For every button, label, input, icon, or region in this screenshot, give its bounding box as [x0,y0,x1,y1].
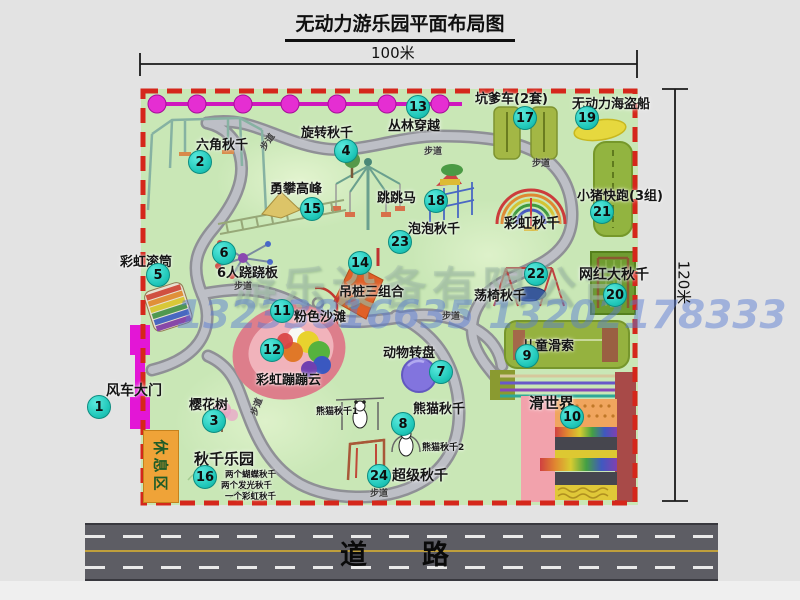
marker-hanging-piles-combo: 14 [348,251,372,275]
label-climbing-peak: 勇攀高峰 [270,178,322,197]
road: 道 路 [85,523,718,581]
label-chair-swing: 荡椅秋千 [474,285,526,304]
walkway-label-4: 步道 [234,279,252,292]
marker-rotating-swing: 4 [334,139,358,163]
marker-climbing-peak: 15 [300,197,324,221]
marker-animal-turntable: 7 [429,360,453,384]
label-bubble-swing: 泡泡秋千 [408,218,460,237]
marker-chair-swing: 22 [524,262,548,286]
rest-area: 休息区 [143,430,179,503]
marker-bubble-swing: 23 [388,230,412,254]
marker-kids-zipline: 9 [515,344,539,368]
label-super-swing: 超级秋千 [392,465,448,485]
marker-piggy-run: 21 [590,200,614,224]
marker-panda-swing: 8 [391,412,415,436]
label-animal-turntable: 动物转盘 [383,342,435,361]
marker-rainbow-bounce-cloud: 12 [260,338,284,362]
marker-cherry-tree: 3 [202,409,226,433]
walkway-label-6: 步道 [442,309,460,322]
label-piggy-run: 小猪快跑(3组) [577,185,663,204]
marker-jungle-crossing: 13 [406,95,430,119]
page-title: 无动力游乐园平面布局图 [0,9,800,42]
marker-pink-beach: 11 [270,299,294,323]
marker-super-swing: 24 [367,464,391,488]
label-jumping-horse: 跳跳马 [377,187,416,206]
marker-jumping-horse: 18 [424,189,448,213]
label-rainbow-bounce-cloud: 彩虹蹦蹦云 [256,369,321,388]
marker-six-person-seesaw: 6 [212,241,236,265]
swing-park-detail-3: 一个彩虹秋千 [225,490,276,502]
marker-pirate-ship: 19 [575,106,599,130]
dimension-height-label: 120米 [673,261,694,305]
marker-slide-world: 10 [560,405,584,429]
label-pink-beach: 粉色沙滩 [294,306,346,325]
label-rainbow-swing: 彩虹秋千 [504,213,560,233]
rest-area-label: 休息区 [151,439,172,493]
marker-big-net-swing: 20 [603,283,627,307]
label-big-net-swing: 网红大秋千 [579,264,649,284]
label-kengdie-cart: 坑爹车(2套) [475,88,548,107]
walkway-label-2: 步道 [424,144,442,157]
label-windmill-gate: 风车大门 [106,380,162,400]
marker-hexagon-swing: 2 [188,150,212,174]
marker-kengdie-cart: 17 [513,106,537,130]
road-label: 道 路 [85,525,718,579]
label-panda-swing: 熊猫秋千 [413,398,465,417]
marker-rainbow-roller: 5 [146,263,170,287]
label-hanging-piles-combo: 吊桩三组合 [339,281,404,300]
label-panda-swing-1: 熊猫秋千1 [316,404,358,417]
playground-layout-map: 无动力游乐园平面布局图 [0,0,800,600]
marker-windmill-gate: 1 [87,395,111,419]
dimension-width-label: 100米 [371,42,415,63]
marker-swing-park: 16 [193,465,217,489]
walkway-label-3: 步道 [532,156,550,169]
bottom-strip [0,581,800,600]
label-panda-swing-2: 熊猫秋千2 [422,440,464,453]
